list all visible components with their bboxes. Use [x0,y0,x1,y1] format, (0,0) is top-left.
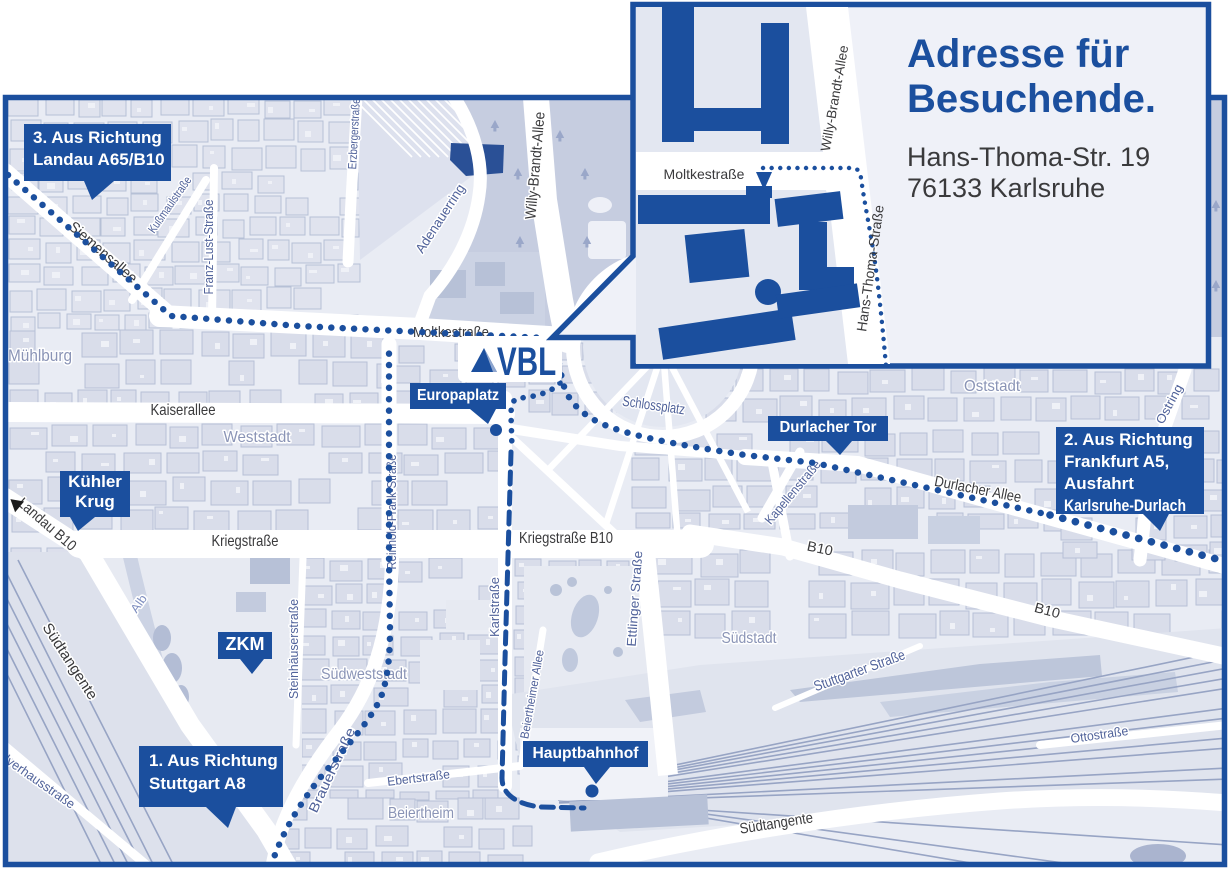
svg-text:Kühler: Kühler [68,472,122,491]
svg-text:3. Aus Richtung: 3. Aus Richtung [33,128,162,147]
svg-text:Adresse für: Adresse für [907,32,1129,76]
svg-text:Europaplatz: Europaplatz [417,387,499,404]
svg-text:Krug: Krug [75,492,115,511]
svg-text:Karlstraße: Karlstraße [488,577,502,637]
svg-text:76133 Karlsruhe: 76133 Karlsruhe [907,173,1105,203]
svg-text:2. Aus Richtung: 2. Aus Richtung [1064,430,1193,449]
svg-text:Weststadt: Weststadt [224,429,292,446]
svg-text:Franz-Lust-Straße: Franz-Lust-Straße [202,199,216,294]
svg-text:Hauptbahnhof: Hauptbahnhof [533,745,640,762]
svg-text:Stuttgart A8: Stuttgart A8 [149,774,246,793]
svg-text:Südstadt: Südstadt [722,630,777,647]
svg-text:Beiertheim: Beiertheim [388,805,454,822]
svg-text:Landau A65/B10: Landau A65/B10 [33,150,165,169]
svg-text:Besuchende.: Besuchende. [907,77,1156,121]
svg-text:Kriegstraße B10: Kriegstraße B10 [519,530,613,547]
svg-text:Mühlburg: Mühlburg [8,346,72,365]
svg-text:Frankfurt A5,: Frankfurt A5, [1064,452,1169,471]
svg-text:ZKM: ZKM [226,634,265,654]
svg-text:Karlsruhe-Durlach: Karlsruhe-Durlach [1064,496,1186,515]
svg-text:Hans-Thoma-Str. 19: Hans-Thoma-Str. 19 [907,142,1150,172]
svg-text:Steinhäuserstraße: Steinhäuserstraße [287,599,301,699]
svg-text:1. Aus Richtung: 1. Aus Richtung [149,751,278,770]
svg-text:Kriegstraße: Kriegstraße [212,533,279,550]
svg-text:Ausfahrt: Ausfahrt [1064,474,1134,493]
svg-text:Oststadt: Oststadt [964,378,1021,395]
svg-text:Durlacher Tor: Durlacher Tor [780,419,877,436]
svg-text:Moltkestraße: Moltkestraße [664,166,745,182]
svg-text:Südweststadt: Südweststadt [321,666,407,683]
svg-text:Kaiserallee: Kaiserallee [151,402,216,419]
svg-text:VBL: VBL [497,340,556,384]
